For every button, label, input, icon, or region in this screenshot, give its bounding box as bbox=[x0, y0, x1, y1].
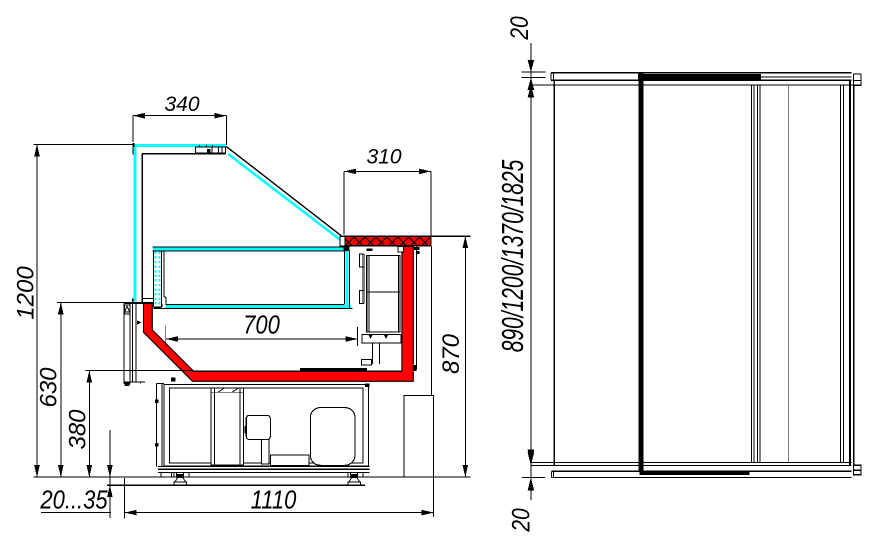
svg-text:20...35: 20...35 bbox=[39, 486, 108, 515]
svg-text:340: 340 bbox=[164, 93, 199, 116]
svg-text:700: 700 bbox=[243, 311, 280, 340]
svg-text:870: 870 bbox=[438, 333, 465, 374]
svg-text:20: 20 bbox=[507, 508, 535, 532]
svg-text:1110: 1110 bbox=[251, 486, 297, 515]
svg-text:310: 310 bbox=[366, 146, 401, 169]
svg-text:380: 380 bbox=[65, 409, 92, 450]
svg-text:630: 630 bbox=[36, 367, 63, 408]
svg-text:20: 20 bbox=[505, 16, 533, 40]
svg-text:1200: 1200 bbox=[13, 266, 40, 320]
svg-text:890/1200/1370/1825: 890/1200/1370/1825 bbox=[495, 159, 530, 352]
